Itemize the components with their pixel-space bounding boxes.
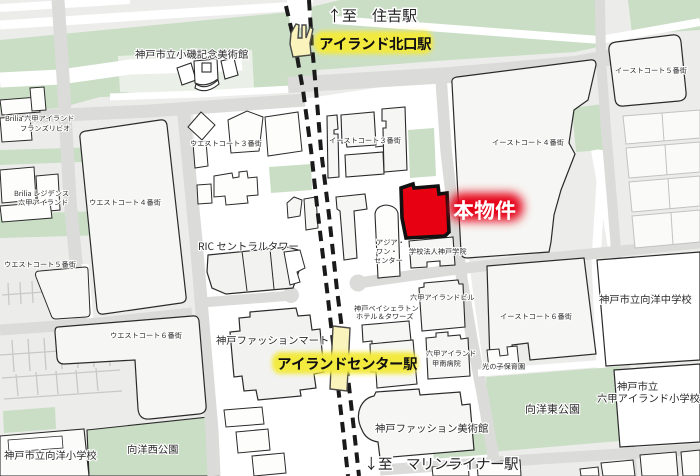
svg-text:ホテル＆タワーズ: ホテル＆タワーズ	[356, 312, 414, 322]
svg-text:アイランド北口駅: アイランド北口駅	[319, 33, 432, 54]
svg-text:↓至 マリンライナー駅: ↓至 マリンライナー駅	[364, 453, 519, 474]
svg-text:神戸ファッション美術館: 神戸ファッション美術館	[375, 420, 488, 435]
svg-text:甲南病院: 甲南病院	[432, 359, 461, 369]
svg-text:ウエストコート３番街: ウエストコート３番街	[190, 139, 262, 149]
svg-text:本物件: 本物件	[453, 195, 516, 225]
svg-text:向洋西公園: 向洋西公園	[127, 441, 178, 456]
svg-text:六甲アイランド小学校: 六甲アイランド小学校	[597, 390, 700, 405]
svg-text:イーストコート６番街: イーストコート６番街	[500, 312, 572, 322]
svg-text:神戸市立向洋中学校: 神戸市立向洋中学校	[599, 291, 692, 306]
svg-text:神戸市立向洋小学校: 神戸市立向洋小学校	[4, 447, 97, 462]
svg-text:神戸市立小磯記念美術館: 神戸市立小磯記念美術館	[135, 46, 248, 61]
svg-text:向洋東公園: 向洋東公園	[525, 401, 580, 417]
svg-text:ウエストコート４番街: ウエストコート４番街	[89, 198, 161, 208]
svg-text:イーストコート３番街: イーストコート３番街	[329, 136, 401, 146]
svg-text:イーストコート４番街: イーストコート４番街	[492, 138, 564, 148]
svg-text:センター: センター	[374, 256, 403, 266]
svg-text:ウエストコート５番街: ウエストコート５番街	[4, 260, 76, 270]
svg-text:学校法人神戸学院: 学校法人神戸学院	[409, 247, 467, 257]
svg-text:RIC セントラルタワー: RIC セントラルタワー	[198, 238, 299, 253]
svg-text:六甲アイランドビル: 六甲アイランドビル	[410, 293, 475, 303]
svg-text:イーストコート５番街: イーストコート５番街	[615, 66, 687, 76]
svg-text:アイランドセンター駅: アイランドセンター駅	[277, 353, 418, 374]
svg-text:↑至 住吉駅: ↑至 住吉駅	[327, 5, 417, 26]
svg-text:光の子保育園: 光の子保育園	[482, 362, 525, 372]
svg-text:フランズリビオ: フランズリビオ	[20, 124, 70, 134]
svg-text:Brilia 六甲アイランド: Brilia 六甲アイランド	[5, 114, 74, 124]
svg-text:ウエストコート６番街: ウエストコート６番街	[110, 331, 182, 341]
svg-text:六甲アイランド: 六甲アイランド	[18, 198, 68, 208]
svg-text:神戸ファッションマート: 神戸ファッションマート	[216, 332, 329, 347]
svg-text:六甲アイランド: 六甲アイランド	[426, 349, 476, 359]
